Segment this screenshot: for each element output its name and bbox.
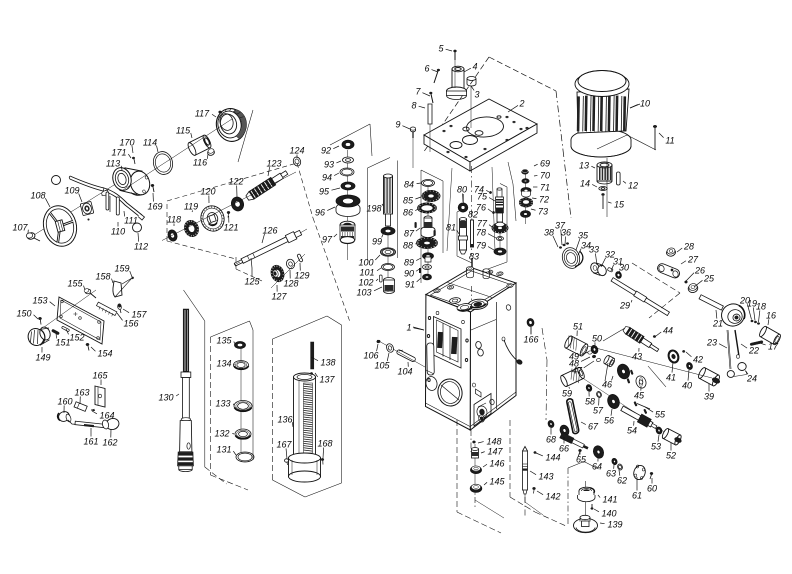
svg-text:35: 35 xyxy=(578,230,589,240)
svg-text:153: 153 xyxy=(32,295,47,305)
svg-text:22: 22 xyxy=(748,345,759,355)
svg-text:125: 125 xyxy=(244,276,260,286)
svg-text:29: 29 xyxy=(619,300,630,310)
svg-text:46: 46 xyxy=(602,379,612,389)
svg-text:4: 4 xyxy=(472,61,477,71)
svg-text:134: 134 xyxy=(216,358,231,368)
svg-text:112: 112 xyxy=(134,241,148,251)
svg-text:119: 119 xyxy=(184,201,198,211)
svg-text:54: 54 xyxy=(627,425,637,435)
svg-text:80: 80 xyxy=(457,184,467,194)
svg-text:110: 110 xyxy=(111,226,125,236)
svg-text:3: 3 xyxy=(474,89,479,99)
svg-text:70: 70 xyxy=(540,170,550,180)
svg-text:14: 14 xyxy=(580,178,590,188)
svg-text:169: 169 xyxy=(147,201,162,211)
svg-text:154: 154 xyxy=(97,348,112,358)
svg-text:101: 101 xyxy=(359,267,374,277)
svg-text:113: 113 xyxy=(106,158,120,168)
svg-text:9: 9 xyxy=(395,119,400,129)
svg-text:67: 67 xyxy=(588,421,599,431)
svg-text:6: 6 xyxy=(424,63,429,73)
svg-text:144: 144 xyxy=(545,452,560,462)
svg-text:161: 161 xyxy=(83,436,98,446)
svg-text:79: 79 xyxy=(476,240,486,250)
svg-text:69: 69 xyxy=(540,158,550,168)
svg-text:33: 33 xyxy=(589,244,599,254)
svg-text:132: 132 xyxy=(214,428,229,438)
svg-text:141: 141 xyxy=(602,494,617,504)
svg-text:88: 88 xyxy=(403,240,413,250)
svg-text:170: 170 xyxy=(119,137,134,147)
svg-text:57: 57 xyxy=(593,405,604,415)
svg-text:104: 104 xyxy=(397,366,412,376)
svg-text:118: 118 xyxy=(167,214,181,224)
svg-text:42: 42 xyxy=(693,354,703,364)
svg-text:52: 52 xyxy=(666,450,676,460)
svg-text:147: 147 xyxy=(487,446,503,456)
svg-text:94: 94 xyxy=(322,172,332,182)
svg-text:171: 171 xyxy=(111,147,126,157)
svg-text:102: 102 xyxy=(358,277,373,287)
svg-text:16: 16 xyxy=(766,310,776,320)
svg-text:10: 10 xyxy=(640,98,650,108)
svg-text:126: 126 xyxy=(262,225,277,235)
svg-text:111: 111 xyxy=(124,215,138,225)
svg-text:143: 143 xyxy=(538,471,553,481)
svg-text:106: 106 xyxy=(363,350,378,360)
svg-text:51: 51 xyxy=(573,321,583,331)
svg-text:81: 81 xyxy=(446,222,456,232)
svg-text:152: 152 xyxy=(69,332,84,342)
svg-text:129: 129 xyxy=(294,270,309,280)
svg-text:68: 68 xyxy=(546,434,556,444)
svg-text:95: 95 xyxy=(319,186,330,196)
svg-text:108: 108 xyxy=(30,190,45,200)
svg-text:47: 47 xyxy=(572,365,583,375)
svg-text:53: 53 xyxy=(651,441,661,451)
svg-text:72: 72 xyxy=(539,194,549,204)
svg-text:65: 65 xyxy=(576,454,587,464)
svg-text:149: 149 xyxy=(35,352,50,362)
svg-text:15: 15 xyxy=(614,199,625,209)
svg-text:122: 122 xyxy=(228,176,243,186)
svg-text:96: 96 xyxy=(315,207,325,217)
svg-text:167: 167 xyxy=(276,439,292,449)
svg-text:36: 36 xyxy=(561,227,571,237)
svg-text:28: 28 xyxy=(683,241,694,251)
svg-text:13: 13 xyxy=(579,160,589,170)
svg-text:89: 89 xyxy=(404,257,414,267)
svg-text:75: 75 xyxy=(477,191,488,201)
svg-text:130: 130 xyxy=(158,392,173,402)
svg-text:137: 137 xyxy=(319,374,335,384)
svg-text:2: 2 xyxy=(518,98,524,108)
svg-text:18: 18 xyxy=(756,301,766,311)
svg-text:138: 138 xyxy=(320,357,335,367)
svg-text:1: 1 xyxy=(406,322,411,332)
svg-text:56: 56 xyxy=(604,415,614,425)
svg-text:92: 92 xyxy=(321,145,331,155)
svg-text:63: 63 xyxy=(606,468,616,478)
svg-text:86: 86 xyxy=(403,207,413,217)
svg-text:100: 100 xyxy=(358,257,373,267)
svg-text:163: 163 xyxy=(74,387,89,397)
svg-text:148: 148 xyxy=(486,436,501,446)
svg-text:116: 116 xyxy=(193,157,207,167)
svg-text:160: 160 xyxy=(57,396,72,406)
svg-text:140: 140 xyxy=(601,508,616,518)
svg-text:105: 105 xyxy=(374,360,390,370)
svg-text:155: 155 xyxy=(67,278,83,288)
svg-text:103: 103 xyxy=(356,287,371,297)
svg-text:73: 73 xyxy=(538,206,548,216)
svg-text:150: 150 xyxy=(16,308,31,318)
svg-text:159: 159 xyxy=(114,263,129,273)
svg-text:158: 158 xyxy=(95,271,110,281)
svg-text:40: 40 xyxy=(682,380,692,390)
svg-text:84: 84 xyxy=(404,179,414,189)
svg-text:50: 50 xyxy=(592,333,602,343)
svg-text:12: 12 xyxy=(628,180,638,190)
svg-text:78: 78 xyxy=(476,227,486,237)
svg-text:114: 114 xyxy=(143,137,157,147)
svg-text:107: 107 xyxy=(12,222,28,232)
svg-text:124: 124 xyxy=(289,145,304,155)
svg-text:142: 142 xyxy=(545,491,560,501)
svg-text:121: 121 xyxy=(223,222,238,232)
svg-text:133: 133 xyxy=(215,398,230,408)
svg-text:157: 157 xyxy=(131,309,147,319)
svg-text:25: 25 xyxy=(703,273,715,283)
svg-text:109: 109 xyxy=(64,185,79,195)
svg-text:168: 168 xyxy=(317,438,332,448)
svg-text:64: 64 xyxy=(592,461,602,471)
svg-text:145: 145 xyxy=(489,476,505,486)
svg-text:27: 27 xyxy=(687,254,699,264)
svg-text:60: 60 xyxy=(647,483,657,493)
svg-text:41: 41 xyxy=(666,372,676,382)
svg-text:146: 146 xyxy=(489,458,504,468)
svg-text:55: 55 xyxy=(655,409,666,419)
svg-text:164: 164 xyxy=(99,410,114,420)
svg-text:39: 39 xyxy=(704,391,714,401)
svg-text:91: 91 xyxy=(405,279,415,289)
svg-text:131: 131 xyxy=(216,444,231,454)
svg-text:198: 198 xyxy=(366,203,381,213)
svg-text:123: 123 xyxy=(266,158,281,168)
svg-text:59: 59 xyxy=(562,388,572,398)
svg-text:45: 45 xyxy=(634,390,645,400)
svg-text:23: 23 xyxy=(706,337,717,347)
svg-text:166: 166 xyxy=(523,334,538,344)
svg-text:136: 136 xyxy=(277,414,292,424)
svg-text:44: 44 xyxy=(663,325,673,335)
svg-text:99: 99 xyxy=(372,236,382,246)
svg-text:120: 120 xyxy=(200,186,215,196)
svg-text:71: 71 xyxy=(540,182,550,192)
svg-text:21: 21 xyxy=(712,318,723,328)
svg-text:24: 24 xyxy=(746,373,757,383)
svg-text:139: 139 xyxy=(607,519,622,529)
svg-text:8: 8 xyxy=(411,100,416,110)
svg-text:97: 97 xyxy=(322,234,333,244)
svg-text:11: 11 xyxy=(665,135,674,145)
svg-text:93: 93 xyxy=(324,159,334,169)
svg-text:127: 127 xyxy=(271,291,287,301)
svg-text:115: 115 xyxy=(176,125,191,135)
svg-text:30: 30 xyxy=(619,262,629,272)
svg-text:90: 90 xyxy=(404,268,414,278)
svg-text:165: 165 xyxy=(92,370,108,380)
svg-text:156: 156 xyxy=(123,318,138,328)
svg-text:117: 117 xyxy=(195,108,210,118)
svg-text:62: 62 xyxy=(617,475,627,485)
svg-text:162: 162 xyxy=(102,437,117,447)
svg-text:43: 43 xyxy=(632,351,642,361)
svg-text:61: 61 xyxy=(632,490,642,500)
svg-text:87: 87 xyxy=(404,228,415,238)
svg-text:135: 135 xyxy=(216,335,232,345)
svg-text:83: 83 xyxy=(469,251,479,261)
svg-text:85: 85 xyxy=(403,195,414,205)
svg-text:38: 38 xyxy=(544,227,554,237)
svg-text:76: 76 xyxy=(476,202,486,212)
svg-text:151: 151 xyxy=(55,337,70,347)
svg-text:17: 17 xyxy=(768,341,779,351)
